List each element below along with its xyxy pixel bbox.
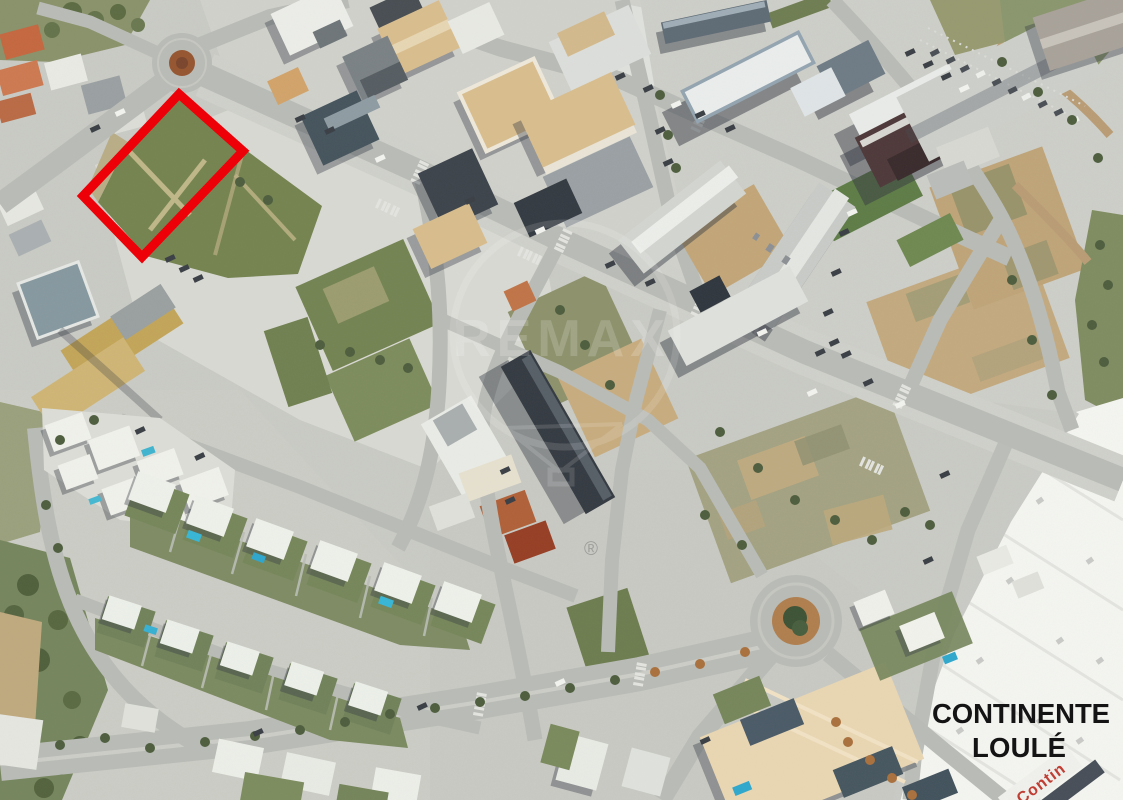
svg-text:®: ® [584,539,598,560]
svg-text:REMAX: REMAX [453,310,671,368]
svg-text:LOULÉ: LOULÉ [972,732,1066,763]
svg-text:CONTINENTE: CONTINENTE [932,698,1110,729]
